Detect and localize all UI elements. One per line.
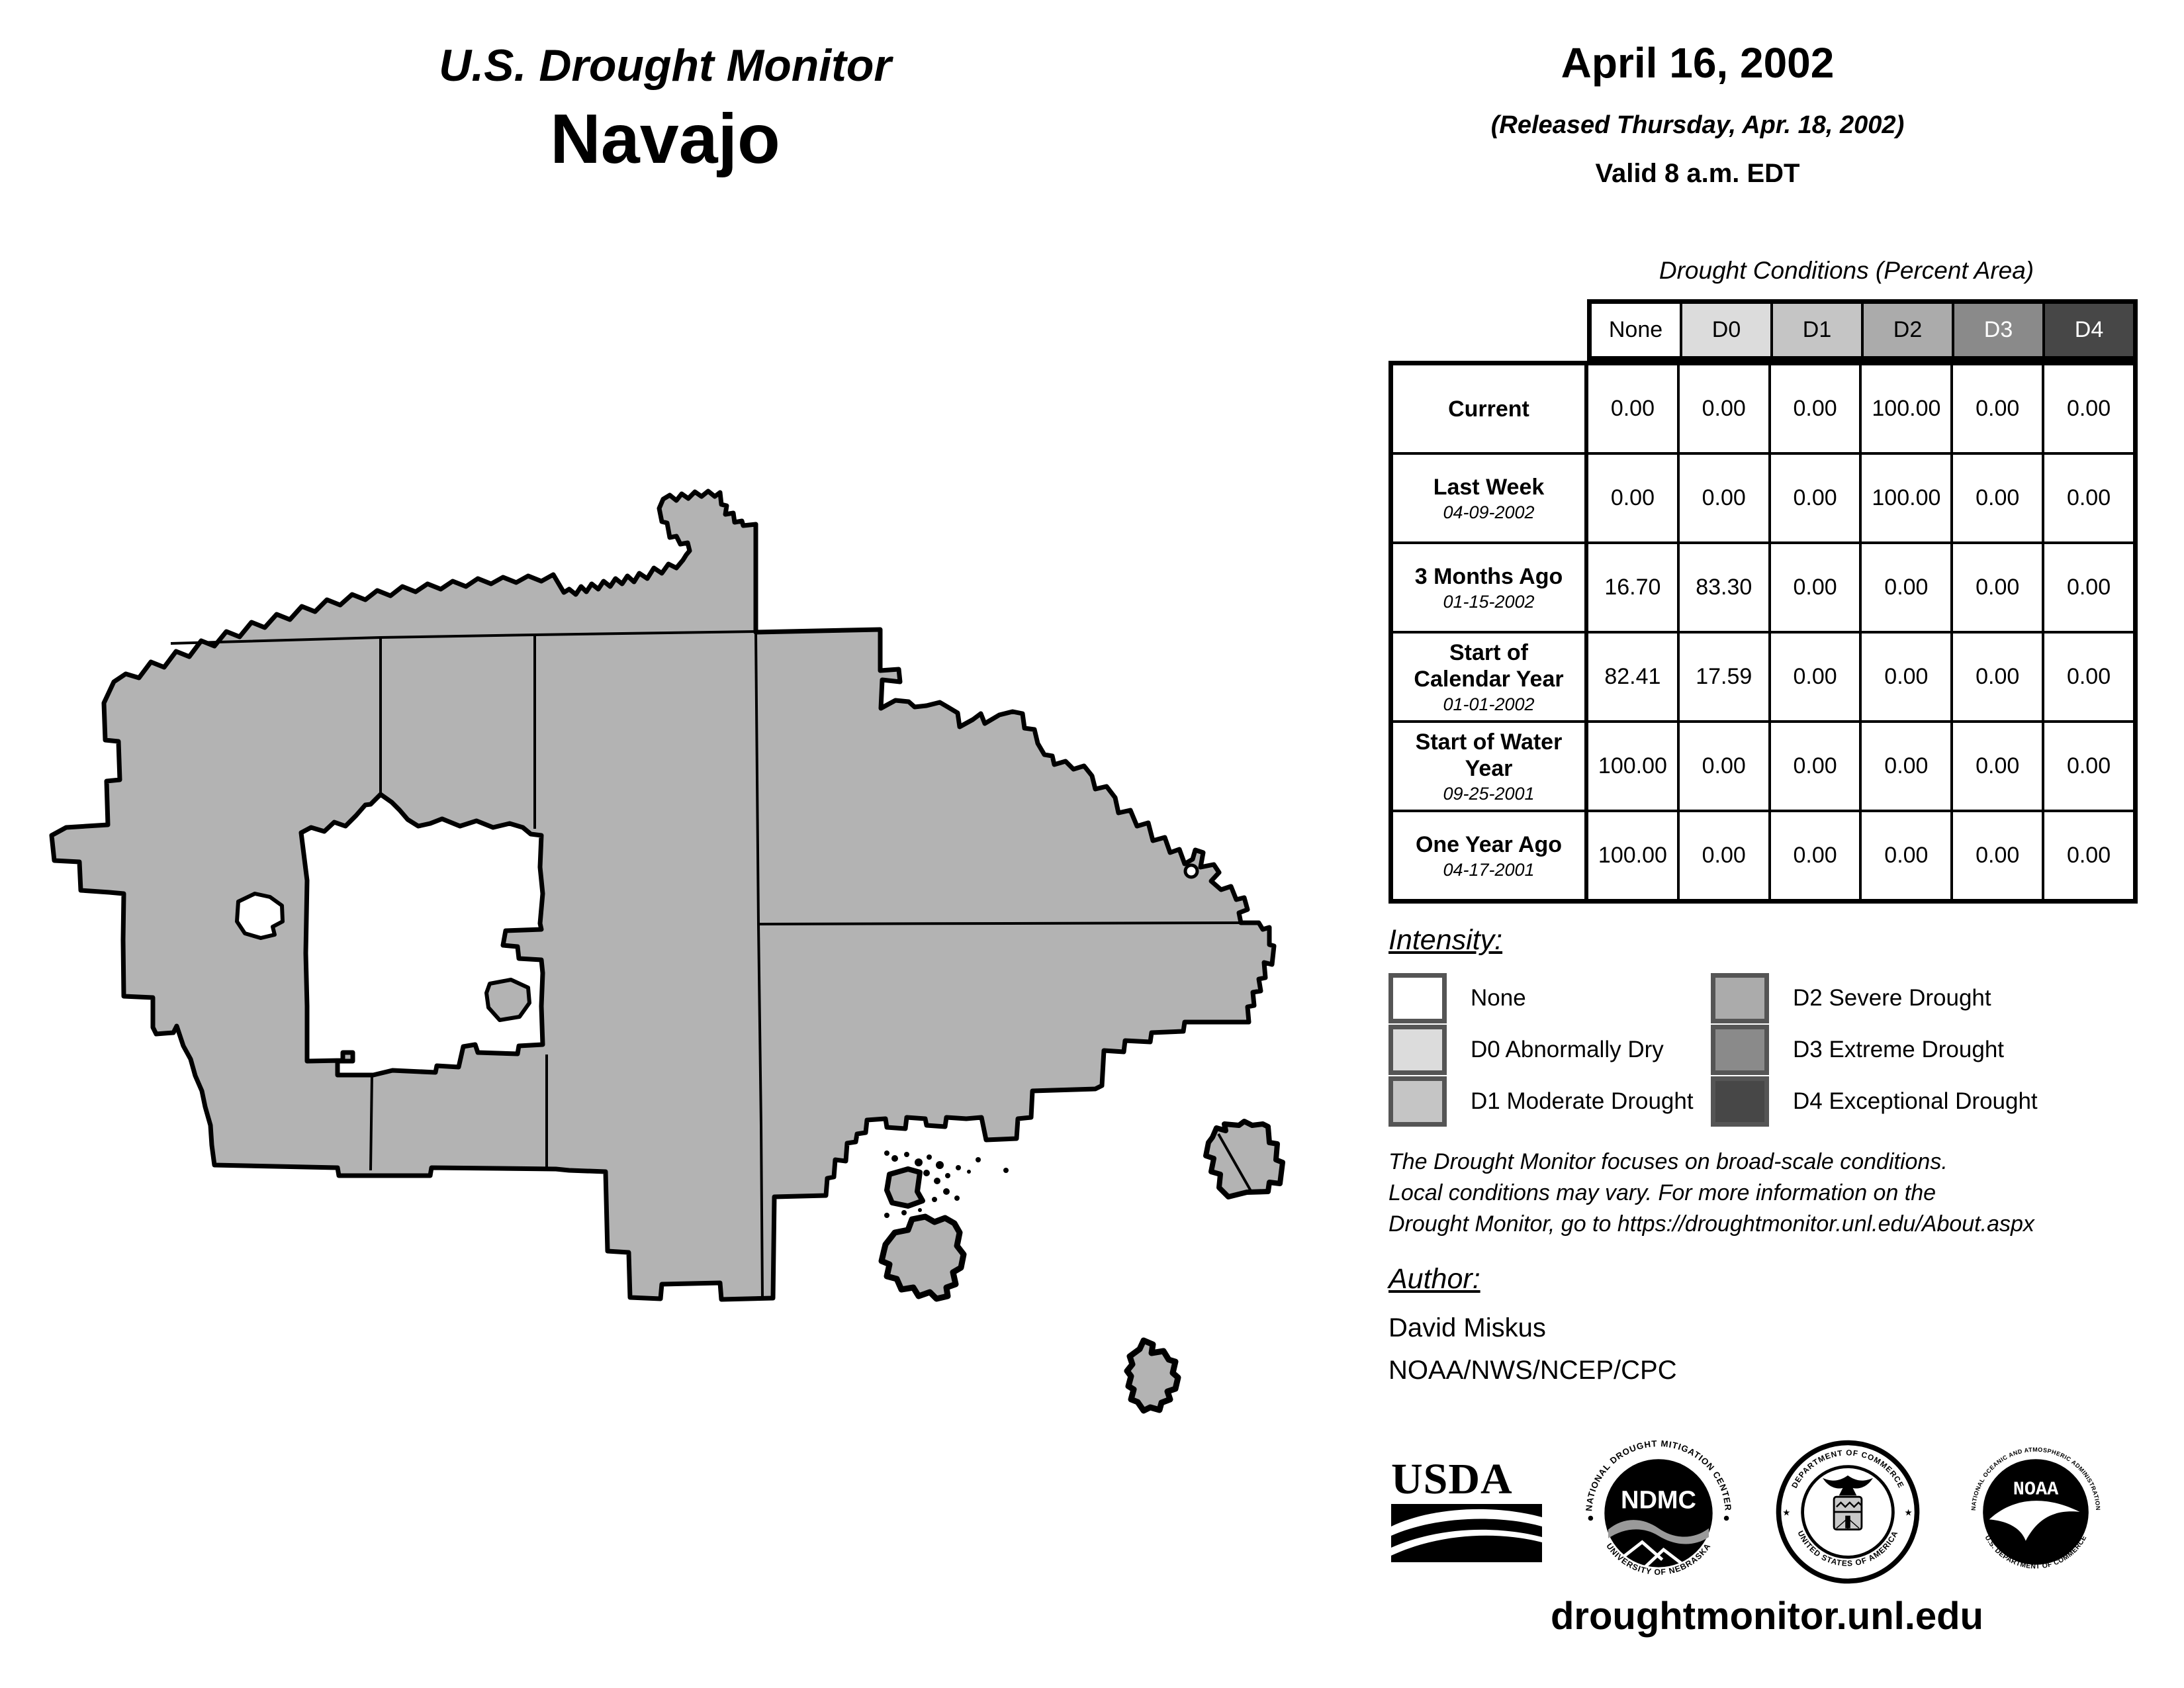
page-title: U.S. Drought Monitor (199, 40, 1132, 91)
table-row: Start of Water Year09-25-2001 100.00 0.0… (1393, 720, 2133, 810)
legend-swatch-d1 (1388, 1076, 1447, 1127)
cell-value: 82.41 (1588, 633, 1677, 720)
author-org: NOAA/NWS/NCEP/CPC (1388, 1356, 1677, 1385)
cell-value: 0.00 (2042, 812, 2133, 899)
cell-value: 0.00 (1768, 723, 1860, 810)
col-header-d0: D0 (1680, 304, 1770, 356)
legend-label: D3 Extreme Drought (1793, 1037, 2004, 1063)
ramah-chapter-polygon (1206, 1121, 1283, 1197)
row-label: One Year Ago (1410, 831, 1569, 858)
cell-value: 0.00 (2042, 455, 2133, 541)
cell-value: 16.70 (1588, 544, 1677, 631)
cell-value: 0.00 (1950, 365, 2042, 452)
legend-swatch-none (1388, 973, 1447, 1023)
legend-label: None (1471, 985, 1526, 1011)
cell-value: 0.00 (1950, 544, 2042, 631)
cell-value: 83.30 (1677, 544, 1768, 631)
disclaimer-line-2: Local conditions may vary. For more info… (1388, 1178, 2169, 1209)
legend-title: Intensity: (1388, 924, 1502, 957)
cell-value: 0.00 (1859, 633, 1950, 720)
cell-value: 0.00 (1950, 812, 2042, 899)
author-heading: Author: (1388, 1263, 1480, 1295)
cell-value: 0.00 (1859, 812, 1950, 899)
table-title: Drought Conditions (Percent Area) (1555, 257, 2138, 285)
legend-swatch-d0 (1388, 1025, 1447, 1075)
cell-value: 0.00 (1859, 723, 1950, 810)
commerce-seal-icon: DEPARTMENT OF COMMERCE UNITED STATES OF … (1772, 1436, 1923, 1587)
usda-logo-text: USDA (1391, 1456, 1513, 1503)
row-label: 3 Months Ago (1410, 563, 1569, 590)
author-name: David Miskus (1388, 1313, 1546, 1343)
noaa-logo-text: NOAA (2013, 1478, 2059, 1500)
hopi-enclave-hole (301, 794, 543, 1075)
tohajiilee-chapter-polygon (1127, 1340, 1178, 1411)
row-label: Start of Water Year (1410, 729, 1569, 782)
main-body-polygon (52, 491, 1274, 1299)
cell-value: 0.00 (1768, 812, 1860, 899)
legend-swatch-d4 (1711, 1076, 1769, 1127)
legend-label: D1 Moderate Drought (1471, 1088, 1694, 1115)
col-header-d3: D3 (1952, 304, 2042, 356)
table-row: Current 0.00 0.00 0.00 100.00 0.00 0.00 (1393, 365, 2133, 452)
legend-label: D4 Exceptional Drought (1793, 1088, 2038, 1115)
cell-value: 0.00 (1588, 365, 1677, 452)
row-label: Last Week (1410, 474, 1569, 500)
legend-item-d1: D1 Moderate Drought (1388, 1076, 1694, 1127)
row-date: 01-15-2002 (1443, 592, 1534, 612)
col-header-d1: D1 (1770, 304, 1861, 356)
cell-value: 0.00 (1768, 633, 1860, 720)
valid-time: Valid 8 a.m. EDT (1396, 159, 1999, 189)
legend-label: D0 Abnormally Dry (1471, 1037, 1664, 1063)
cell-value: 0.00 (2042, 633, 2133, 720)
ndmc-logo-text: NDMC (1621, 1486, 1696, 1514)
cell-value: 0.00 (1677, 812, 1768, 899)
row-date: 04-09-2002 (1443, 502, 1534, 523)
ndmc-logo-icon: NATIONAL DROUGHT MITIGATION CENTER NDMC … (1583, 1436, 1734, 1587)
col-header-d2: D2 (1861, 304, 1952, 356)
cell-value: 0.00 (1859, 544, 1950, 631)
table-row: Start of Calendar Year01-01-2002 82.41 1… (1393, 631, 2133, 720)
disclaimer-text: The Drought Monitor focuses on broad-sca… (1388, 1147, 2169, 1240)
island-inside-hole (486, 980, 529, 1020)
cell-value: 0.00 (1588, 455, 1677, 541)
cell-value: 100.00 (1859, 365, 1950, 452)
footer-url: droughtmonitor.unl.edu (1522, 1594, 2012, 1638)
col-header-none: None (1592, 304, 1680, 356)
legend-swatch-d3 (1711, 1025, 1769, 1075)
legend-item-d0: D0 Abnormally Dry (1388, 1025, 1664, 1075)
legend-item-d4: D4 Exceptional Drought (1711, 1076, 2038, 1127)
legend-item-none: None (1388, 973, 1526, 1023)
usda-logo-icon: USDA (1390, 1456, 1545, 1566)
map-date: April 16, 2002 (1396, 38, 1999, 87)
region-title: Navajo (199, 99, 1132, 179)
small-white-hole (237, 894, 283, 938)
cell-value: 0.00 (1768, 544, 1860, 631)
svg-text:★: ★ (1782, 1508, 1790, 1518)
cell-value: 0.00 (2042, 365, 2133, 452)
col-header-d4: D4 (2042, 304, 2133, 356)
row-date: 04-17-2001 (1443, 860, 1534, 880)
alamo-chapter-polygon (882, 1217, 964, 1299)
row-date: 01-01-2002 (1443, 694, 1534, 715)
table-row: Last Week04-09-2002 0.00 0.00 0.00 100.0… (1393, 452, 2133, 541)
disclaimer-line-3: Drought Monitor, go to https://droughtmo… (1388, 1209, 2169, 1240)
cell-value: 0.00 (1677, 365, 1768, 452)
row-label: Current (1410, 396, 1569, 422)
table-row: 3 Months Ago01-15-2002 16.70 83.30 0.00 … (1393, 541, 2133, 631)
hogback-white-notch (1185, 865, 1197, 877)
cell-value: 0.00 (2042, 723, 2133, 810)
cell-value: 0.00 (1768, 365, 1860, 452)
drought-monitor-page: { "header": { "title": "U.S. Drought Mon… (0, 0, 2184, 1688)
cell-value: 0.00 (1768, 455, 1860, 541)
release-date: (Released Thursday, Apr. 18, 2002) (1396, 111, 1999, 140)
cell-value: 0.00 (1677, 723, 1768, 810)
cell-value: 100.00 (1859, 455, 1950, 541)
cell-value: 0.00 (1950, 633, 2042, 720)
legend-item-d2: D2 Severe Drought (1711, 973, 1991, 1023)
cell-value: 100.00 (1588, 723, 1677, 810)
cell-value: 0.00 (1677, 455, 1768, 541)
checkerboard-patch (887, 1169, 923, 1206)
table-row: One Year Ago04-17-2001 100.00 0.00 0.00 … (1393, 810, 2133, 899)
cell-value: 0.00 (1950, 723, 2042, 810)
legend-swatch-d2 (1711, 973, 1769, 1023)
legend-label: D2 Severe Drought (1793, 985, 1991, 1011)
noaa-logo-icon: NATIONAL OCEANIC AND ATMOSPHERIC ADMINIS… (1960, 1436, 2111, 1587)
legend-item-d3: D3 Extreme Drought (1711, 1025, 2004, 1075)
cell-value: 100.00 (1588, 812, 1677, 899)
row-date: 09-25-2001 (1443, 784, 1534, 804)
drought-table-body: Current 0.00 0.00 0.00 100.00 0.00 0.00 … (1388, 361, 2138, 904)
row-label: Start of Calendar Year (1410, 639, 1569, 692)
cell-value: 0.00 (1950, 455, 2042, 541)
disclaimer-line-1: The Drought Monitor focuses on broad-sca… (1388, 1147, 2169, 1178)
cell-value: 17.59 (1677, 633, 1768, 720)
cell-value: 0.00 (2042, 544, 2133, 631)
navajo-nation-shape (52, 491, 1283, 1411)
drought-table-header: None D0 D1 D2 D3 D4 (1587, 299, 2138, 361)
svg-text:★: ★ (1905, 1508, 1913, 1518)
